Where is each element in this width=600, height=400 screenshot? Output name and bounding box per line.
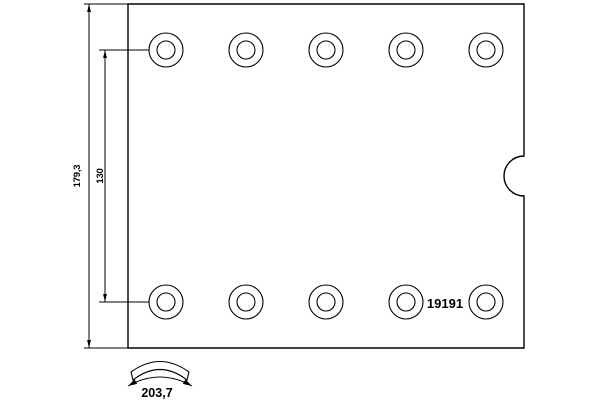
- arc-measure-line: [128, 377, 192, 386]
- arrowhead-right-icon: [183, 379, 193, 388]
- rivet-hole: [149, 33, 183, 67]
- arc-length-label: 203,7: [141, 386, 172, 400]
- arrowhead-down-icon: [87, 340, 91, 348]
- rivet-hole: [389, 285, 423, 319]
- drawing-canvas: 179,3 130 19191 203,7: [0, 0, 600, 400]
- overall-width-label: 179,3: [72, 165, 83, 188]
- arrowhead-up-icon: [87, 4, 91, 12]
- rivet-hole: [469, 285, 503, 319]
- dimension-rivet-spacing: 130: [95, 50, 149, 302]
- rivet-hole: [229, 33, 263, 67]
- rivet-hole: [469, 33, 503, 67]
- rivet-hole: [309, 33, 343, 67]
- arrowhead-up-icon: [103, 50, 107, 58]
- rivet-hole: [389, 33, 423, 67]
- arrowhead-down-icon: [103, 294, 107, 302]
- rivet-hole: [149, 285, 183, 319]
- arc-length-indicator: 203,7: [127, 362, 194, 400]
- rivet-hole: [229, 285, 263, 319]
- rivet-spacing-label: 130: [95, 168, 106, 183]
- brake-lining-technical-drawing: 179,3 130 19191 203,7: [0, 0, 600, 400]
- part-number-label: 19191: [427, 296, 463, 311]
- rivet-hole: [309, 285, 343, 319]
- rivet-holes-top-row: [149, 33, 503, 67]
- arrowhead-left-icon: [127, 379, 137, 388]
- lining-plate-outline: [128, 4, 524, 348]
